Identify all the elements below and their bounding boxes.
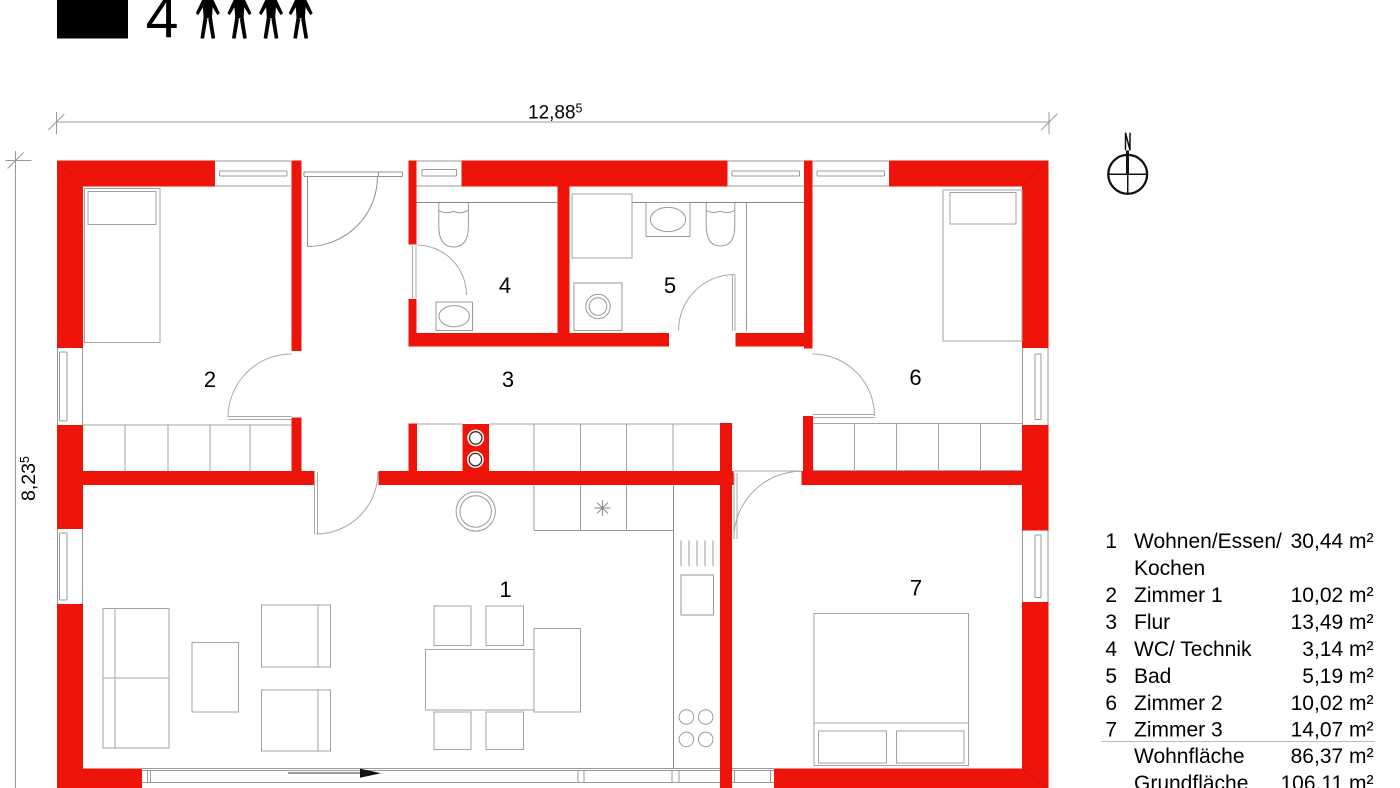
svg-text:5: 5 [1105,665,1117,688]
svg-text:1: 1 [1105,530,1117,553]
svg-text:Grundfläche: Grundfläche [1134,772,1248,788]
svg-text:Zimmer 3: Zimmer 3 [1134,719,1223,742]
svg-text:7: 7 [1105,719,1117,742]
svg-text:6: 6 [1105,692,1117,715]
svg-text:14,07 m²: 14,07 m² [1291,719,1374,742]
svg-text:86,37 m²: 86,37 m² [1291,745,1374,768]
svg-text:30,44 m²: 30,44 m² [1291,530,1374,553]
svg-text:6: 6 [909,365,921,390]
svg-text:4: 4 [499,273,511,298]
svg-text:Kochen: Kochen [1134,557,1205,580]
svg-text:4: 4 [1105,638,1117,661]
svg-text:1: 1 [499,577,511,602]
svg-text:3: 3 [1105,611,1117,634]
svg-text:5: 5 [664,273,676,298]
svg-text:Zimmer 2: Zimmer 2 [1134,692,1223,715]
svg-text:4: 4 [146,0,179,51]
svg-text:3: 3 [502,367,514,392]
svg-text:10,02 m²: 10,02 m² [1291,692,1374,715]
svg-text:106,11 m²: 106,11 m² [1281,772,1374,788]
svg-text:10,02 m²: 10,02 m² [1291,584,1374,607]
svg-text:13,49 m²: 13,49 m² [1291,611,1374,634]
svg-text:7: 7 [910,576,922,601]
svg-text:Flur: Flur [1134,611,1170,634]
svg-text:Wohnen/Essen/: Wohnen/Essen/ [1134,530,1282,553]
svg-text:3,14 m²: 3,14 m² [1302,638,1373,661]
svg-text:Zimmer 1: Zimmer 1 [1134,584,1223,607]
svg-text:2: 2 [204,367,216,392]
svg-text:5,19 m²: 5,19 m² [1302,665,1373,688]
svg-text:WC/ Technik: WC/ Technik [1134,638,1252,661]
svg-text:2: 2 [1105,584,1117,607]
svg-text:12,885: 12,885 [528,102,583,124]
svg-text:Wohnfläche: Wohnfläche [1134,745,1245,768]
svg-text:Bad: Bad [1134,665,1171,688]
